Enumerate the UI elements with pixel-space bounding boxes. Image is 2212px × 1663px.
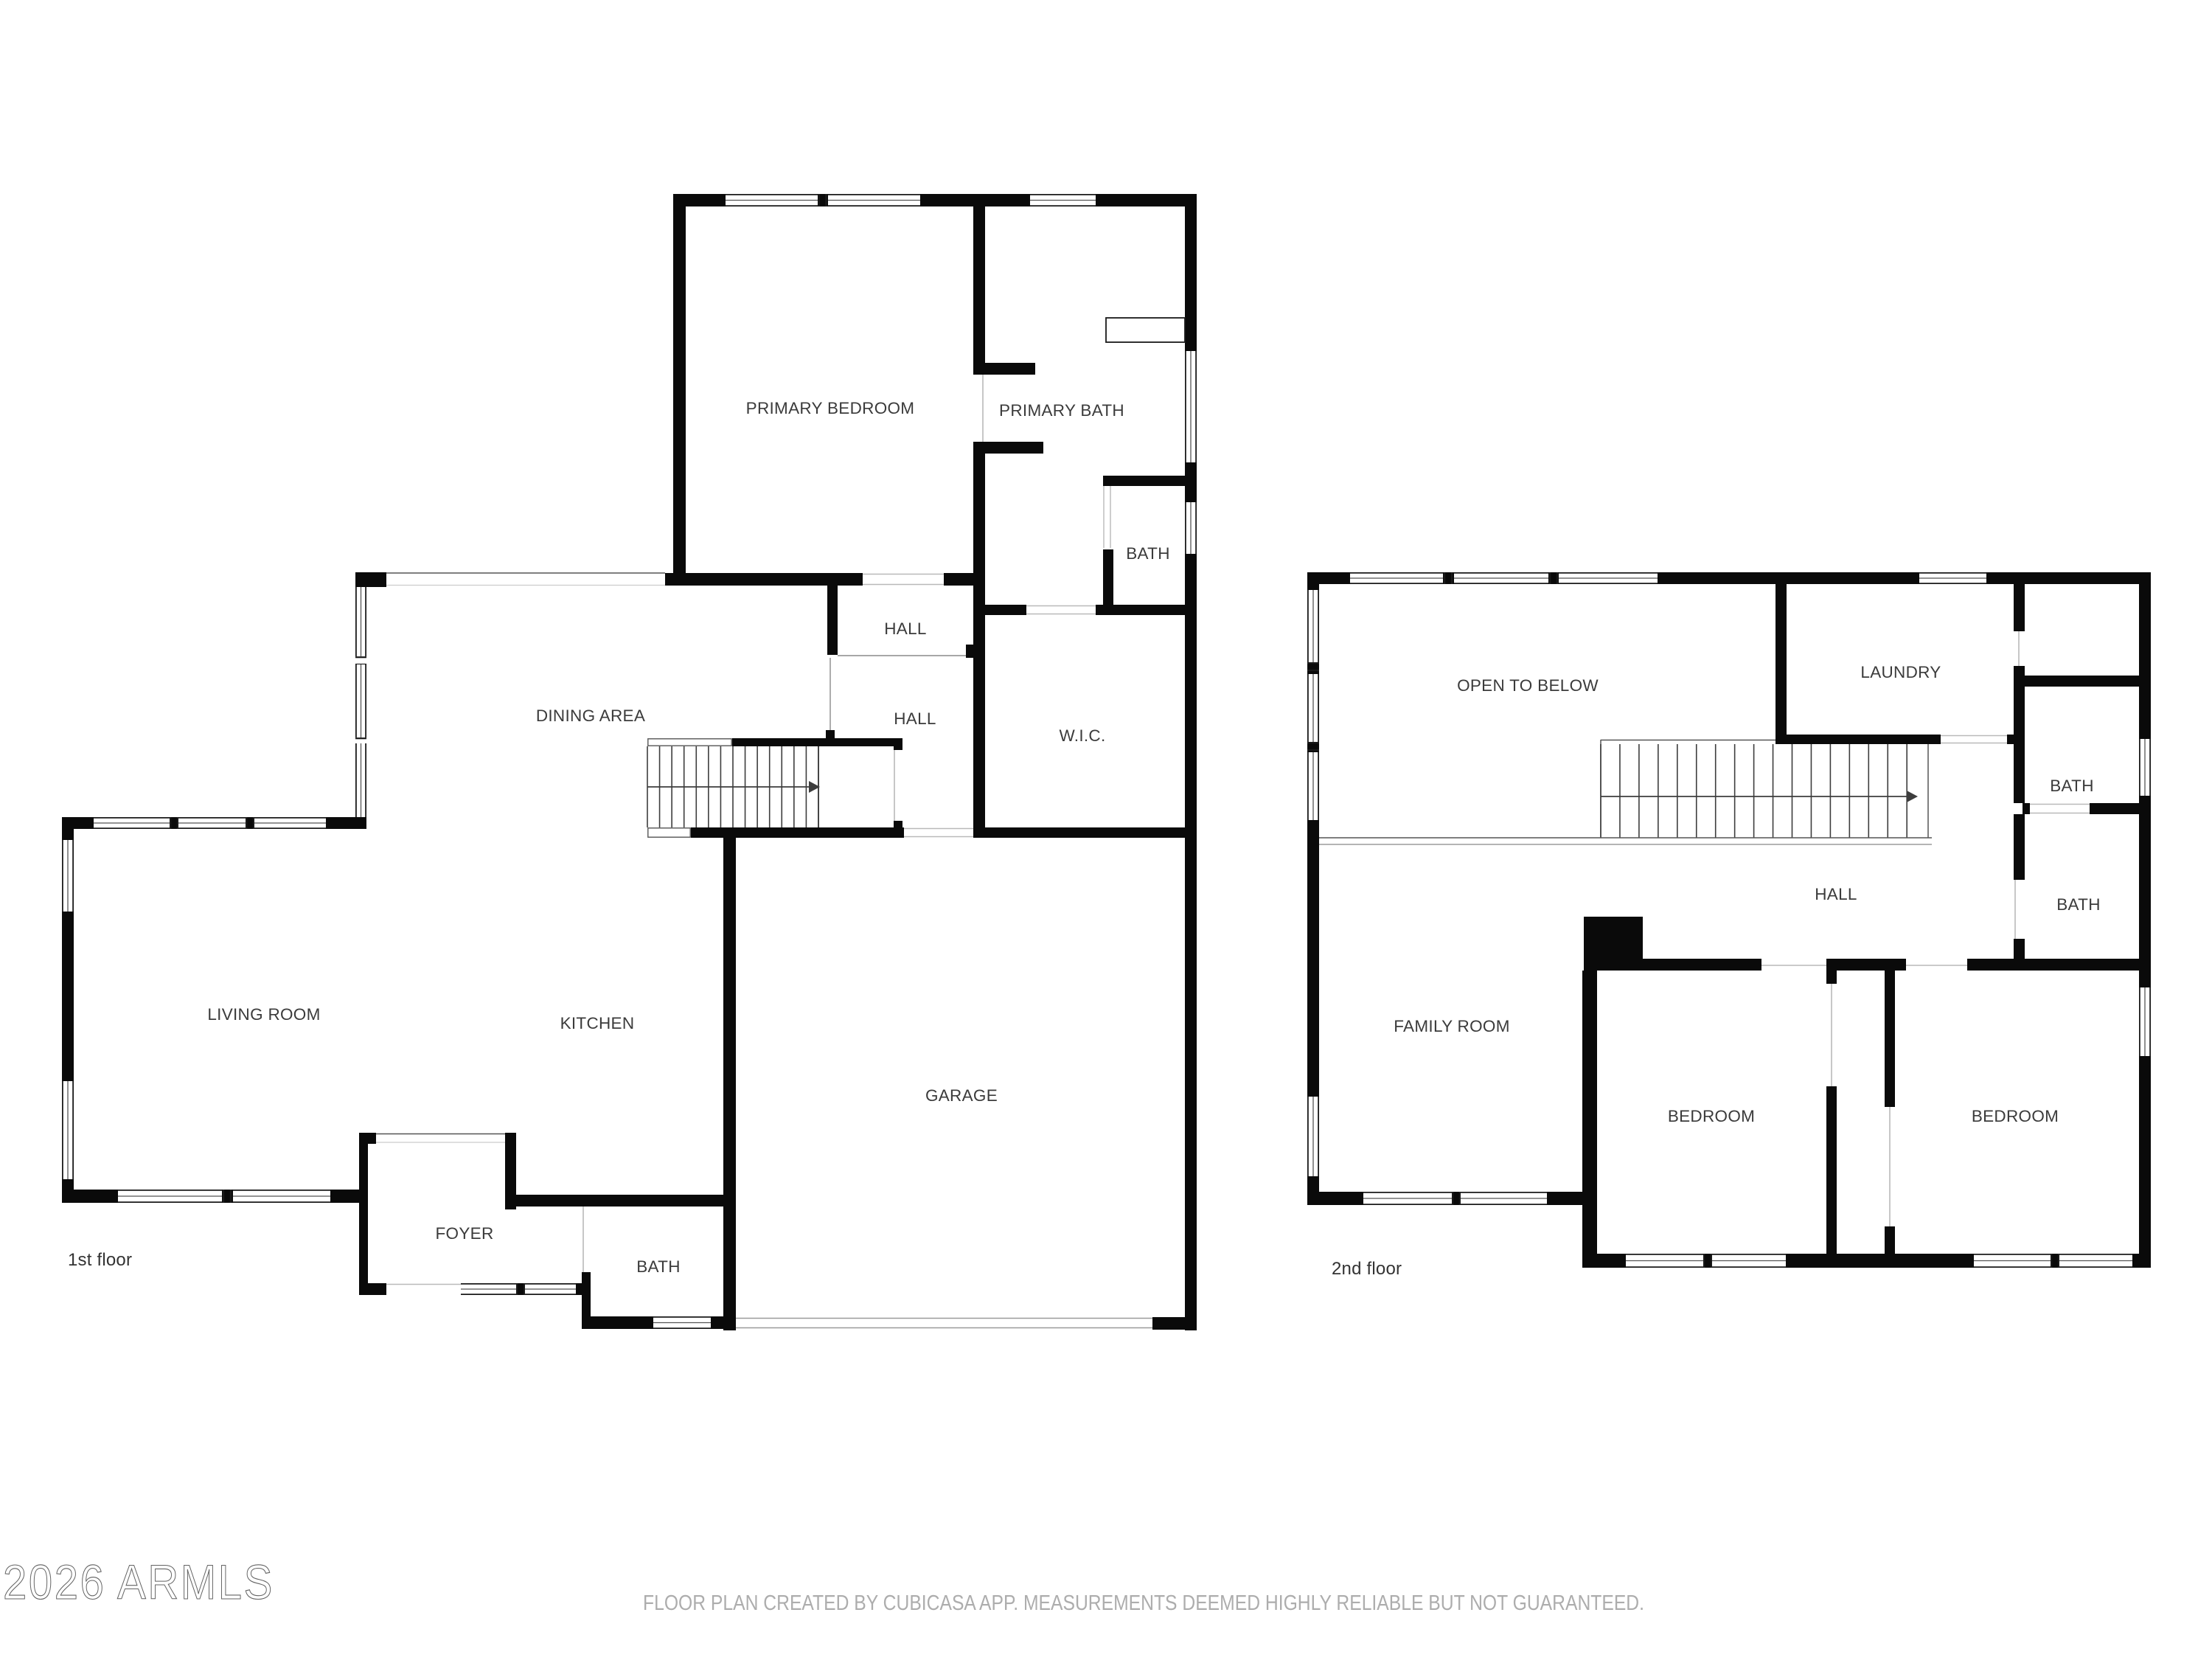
svg-text:HALL: HALL <box>884 619 926 638</box>
svg-text:LAUNDRY: LAUNDRY <box>1860 663 1941 681</box>
svg-text:KITCHEN: KITCHEN <box>560 1014 635 1032</box>
svg-text:HALL: HALL <box>1815 885 1857 903</box>
svg-text:FOYER: FOYER <box>435 1224 493 1243</box>
svg-text:BATH: BATH <box>2050 777 2094 795</box>
svg-text:OPEN TO BELOW: OPEN TO BELOW <box>1457 676 1599 695</box>
svg-text:2026 ARMLS: 2026 ARMLS <box>3 1555 274 1609</box>
svg-text:BEDROOM: BEDROOM <box>1668 1107 1755 1125</box>
svg-text:HALL: HALL <box>894 709 936 728</box>
svg-text:BATH: BATH <box>636 1257 681 1276</box>
svg-text:BATH: BATH <box>2056 895 2101 914</box>
svg-text:GARAGE: GARAGE <box>925 1086 998 1105</box>
svg-text:1st floor: 1st floor <box>68 1250 132 1270</box>
svg-text:FAMILY ROOM: FAMILY ROOM <box>1394 1017 1510 1035</box>
svg-text:BEDROOM: BEDROOM <box>1972 1107 2059 1125</box>
svg-text:2nd floor: 2nd floor <box>1332 1259 1402 1279</box>
svg-text:DINING AREA: DINING AREA <box>536 706 645 725</box>
svg-text:W.I.C.: W.I.C. <box>1059 726 1105 745</box>
svg-text:PRIMARY BEDROOM: PRIMARY BEDROOM <box>746 399 915 417</box>
svg-text:BATH: BATH <box>1126 544 1170 563</box>
svg-text:FLOOR PLAN CREATED BY CUBICASA: FLOOR PLAN CREATED BY CUBICASA APP. MEAS… <box>643 1591 1644 1615</box>
svg-text:LIVING ROOM: LIVING ROOM <box>207 1005 320 1024</box>
svg-text:PRIMARY BATH: PRIMARY BATH <box>999 401 1124 420</box>
